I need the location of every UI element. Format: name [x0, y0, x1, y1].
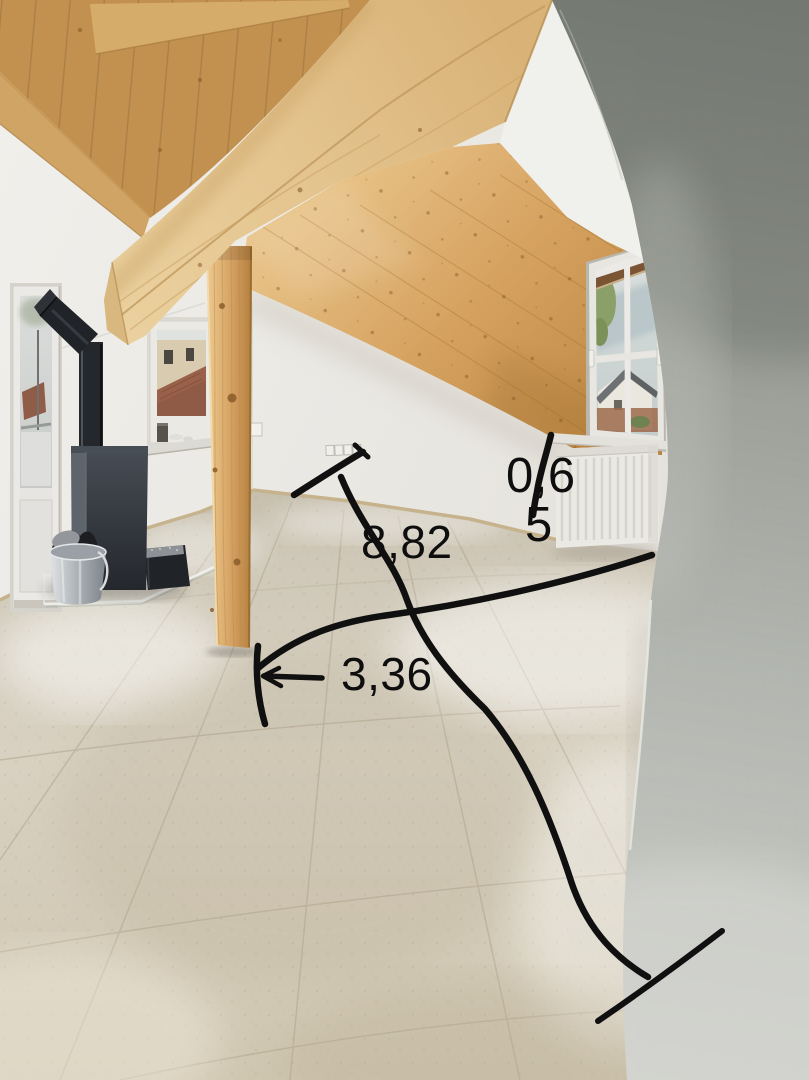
label-sill-height-1: 0,6	[506, 449, 576, 503]
small-window-glass	[157, 330, 206, 416]
label-sill-height-2: 5	[525, 498, 553, 552]
sill-object	[157, 426, 168, 442]
label-room-length: 8,82	[361, 516, 453, 568]
window-handle-left	[589, 350, 594, 367]
small-dormer-window	[146, 317, 218, 456]
window-mullion	[624, 258, 631, 434]
firewood-bin	[143, 545, 190, 590]
label-room-width: 3,36	[341, 648, 433, 700]
photo-canvas: 8,82 3,36 0,6 5	[0, 0, 809, 1080]
corner-outlet	[251, 423, 262, 436]
attic-room-photo: 8,82 3,36 0,6 5	[0, 0, 809, 1080]
